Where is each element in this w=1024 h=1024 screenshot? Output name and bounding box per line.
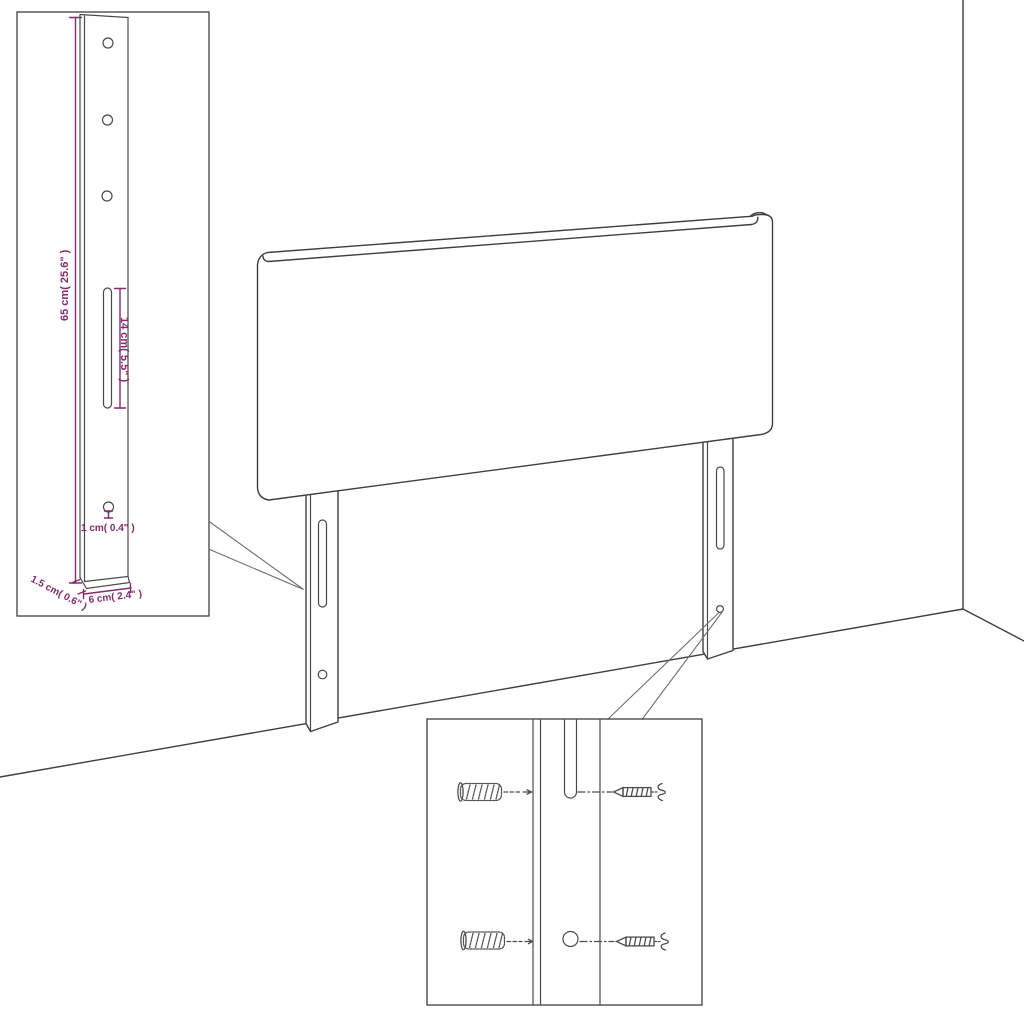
headboard-panel xyxy=(258,213,773,500)
dimension-label-width: 6 cm( 2.4" ) xyxy=(88,589,143,606)
wall-plug-thread xyxy=(499,934,503,948)
screw-thread xyxy=(629,937,631,946)
screw-thread xyxy=(644,937,646,946)
wall-plug-thread xyxy=(473,785,477,799)
bracket-slot xyxy=(104,288,112,408)
arrow-to-leg-top xyxy=(523,790,532,794)
leg-strip-hole xyxy=(563,932,578,947)
wall-plug-thread xyxy=(470,934,474,948)
floor-line-right xyxy=(963,609,1024,641)
screw-tip xyxy=(617,937,627,946)
screw-thread xyxy=(639,937,641,946)
dimension-tick-thickness xyxy=(73,580,81,583)
bracket-dimensions: 65 cm( 25.6" ) 14 cm( 5.5" ) 1 cm( 0.4" … xyxy=(29,18,143,613)
wall-plug-thread xyxy=(476,934,480,948)
arrow-to-leg-bottom xyxy=(525,939,533,943)
wall-plug-icon xyxy=(458,783,502,801)
headboard-front-face xyxy=(258,215,773,501)
screw-thread xyxy=(641,788,643,797)
bracket-hole-1 xyxy=(103,38,113,48)
leg-strip-detail xyxy=(533,720,600,1005)
diagram-canvas: 65 cm( 25.6" ) 14 cm( 5.5" ) 1 cm( 0.4" … xyxy=(0,0,1024,1024)
screw-coil-squiggle xyxy=(661,933,668,950)
right-mounting-leg xyxy=(703,437,733,659)
wall-plug-thread xyxy=(488,934,492,948)
screw-coil-squiggle xyxy=(658,784,665,801)
dimension-label-height: 65 cm( 25.6" ) xyxy=(59,249,71,321)
bracket-hole-3 xyxy=(102,191,112,201)
dimension-label-hole: 1 cm( 0.4" ) xyxy=(81,523,135,534)
bracket-hole-2 xyxy=(103,115,113,125)
screw-thread xyxy=(636,788,638,797)
floor-line-left xyxy=(0,609,963,777)
screw-thread xyxy=(631,788,633,797)
screw-icon xyxy=(614,784,666,801)
wall-plug-thread xyxy=(482,934,486,948)
mounting-bracket xyxy=(80,15,130,589)
assembly-diagram: 65 cm( 25.6" ) 14 cm( 5.5" ) 1 cm( 0.4" … xyxy=(0,0,1024,1024)
callout-line-hole-left xyxy=(608,613,720,720)
screw-tip xyxy=(614,788,624,797)
wall-plug-thread xyxy=(496,785,500,799)
hardware-detail-inset xyxy=(427,612,723,1006)
bracket-top-edge xyxy=(80,15,128,18)
left-mounting-leg xyxy=(306,490,338,732)
wall-plug-thread xyxy=(467,785,471,799)
wall-plug-thread xyxy=(494,934,498,948)
dimension-label-slot: 14 cm( 5.5" ) xyxy=(118,317,130,382)
wall-plug-thread xyxy=(491,785,495,799)
screw-icon xyxy=(617,933,669,950)
callout-line-hole-right xyxy=(642,612,723,720)
wall-plug-icon xyxy=(461,931,505,949)
hardware-row-top xyxy=(458,783,665,801)
bracket-bottom-front-edge xyxy=(85,577,129,582)
leg-strip-slot xyxy=(565,720,577,799)
wall-plug-thread xyxy=(485,785,489,799)
screw-thread xyxy=(649,937,651,946)
screw-thread xyxy=(626,788,628,797)
wall-plug-thread xyxy=(479,785,483,799)
screw-thread xyxy=(634,937,636,946)
screw-thread xyxy=(646,788,648,797)
bracket-bottom-facet xyxy=(80,577,130,589)
